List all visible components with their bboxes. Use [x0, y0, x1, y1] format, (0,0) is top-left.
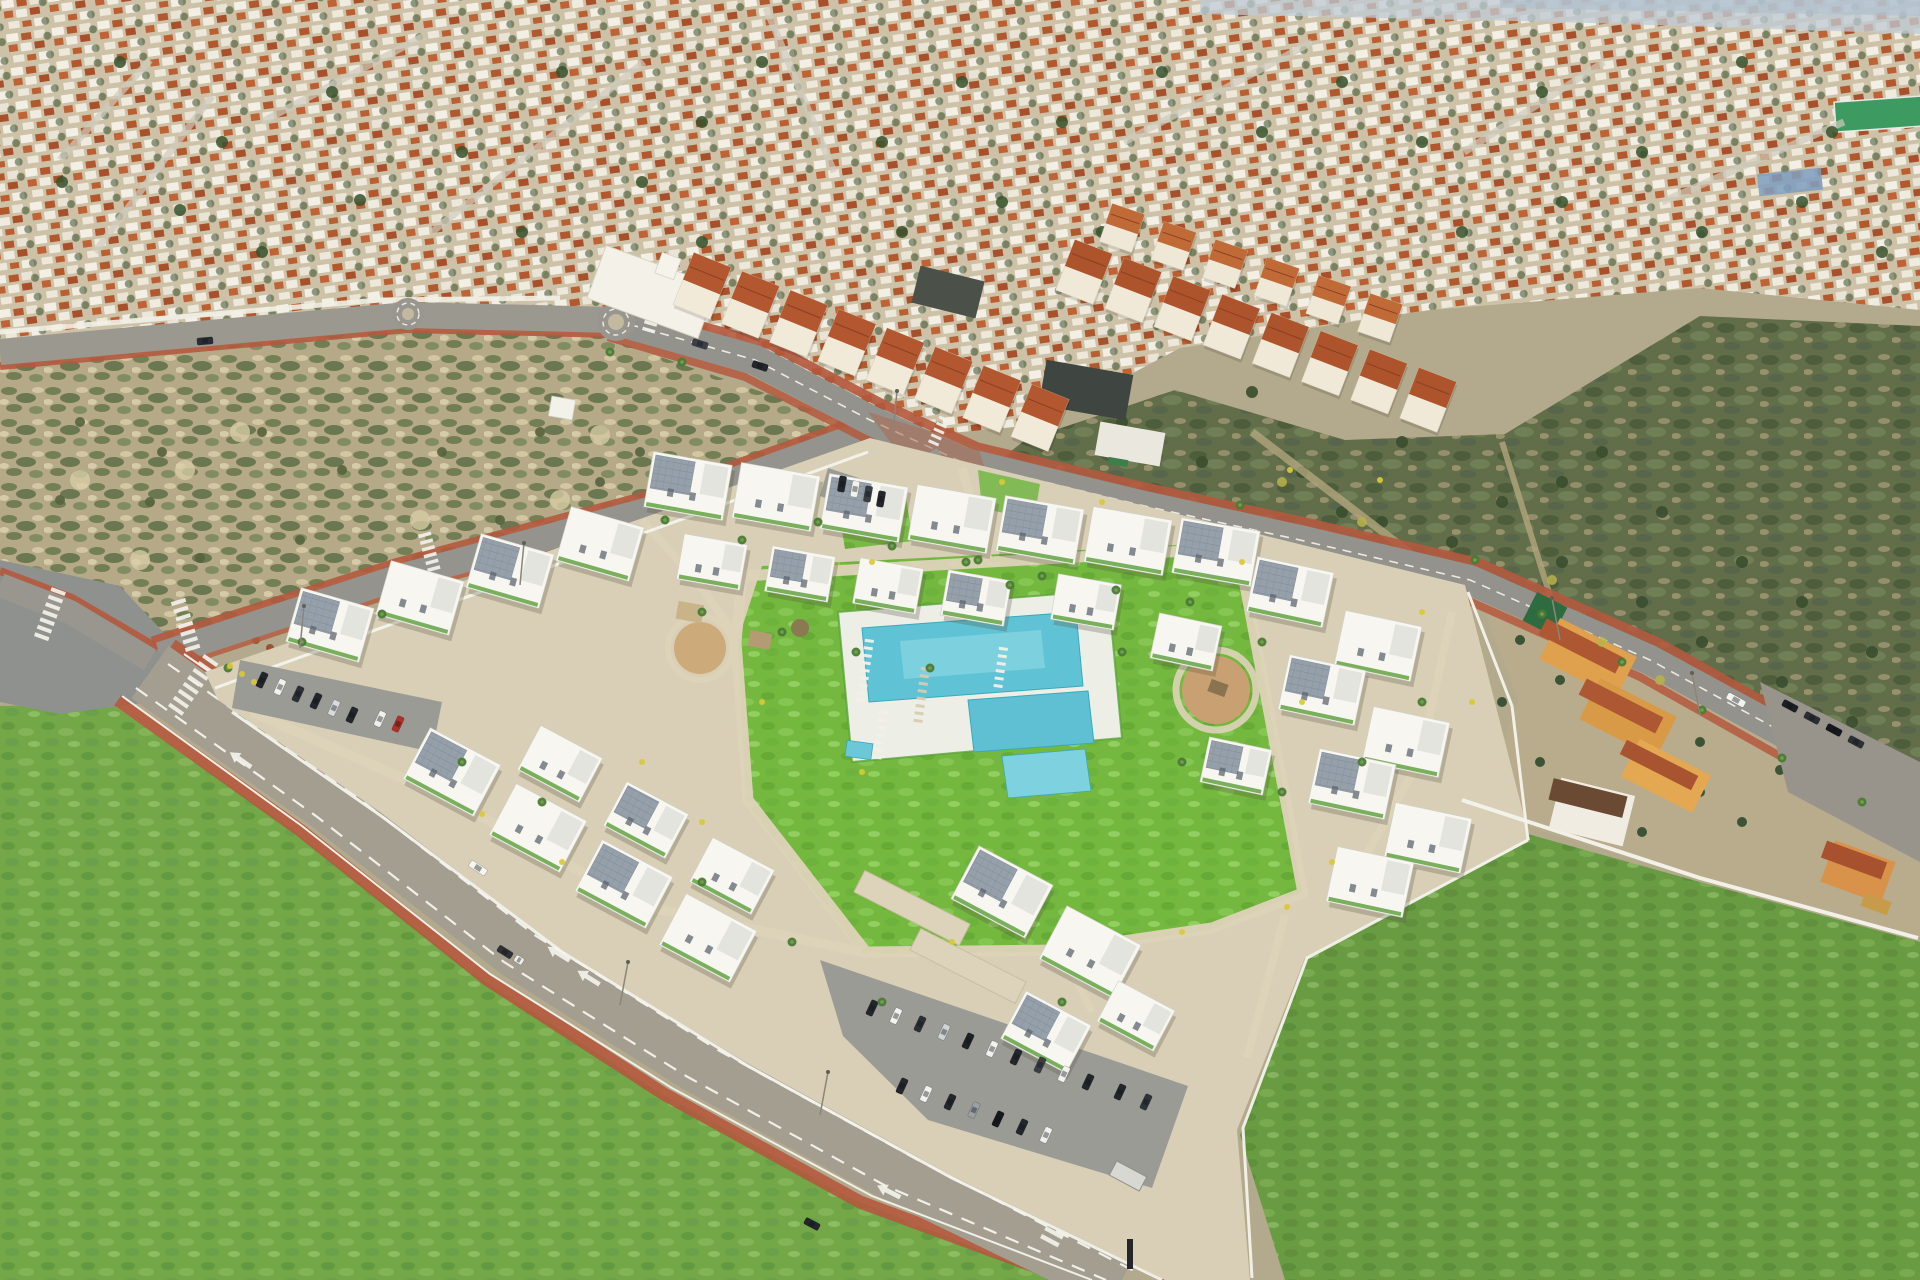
thatch-gazebo — [791, 619, 809, 637]
aerial-photo-canvas — [0, 0, 1920, 1280]
signpost — [1127, 1239, 1133, 1269]
swimming-pool-second — [968, 691, 1094, 752]
football-pitch — [1834, 96, 1920, 132]
aerial-photo — [0, 0, 1920, 1280]
roundabout-island — [402, 308, 414, 320]
kids-pool — [845, 740, 873, 759]
car — [197, 337, 214, 346]
utility-cabin — [548, 396, 575, 420]
roundabout-island — [608, 314, 624, 330]
swimming-pool-third — [1002, 749, 1091, 798]
playground-sand — [674, 622, 726, 674]
